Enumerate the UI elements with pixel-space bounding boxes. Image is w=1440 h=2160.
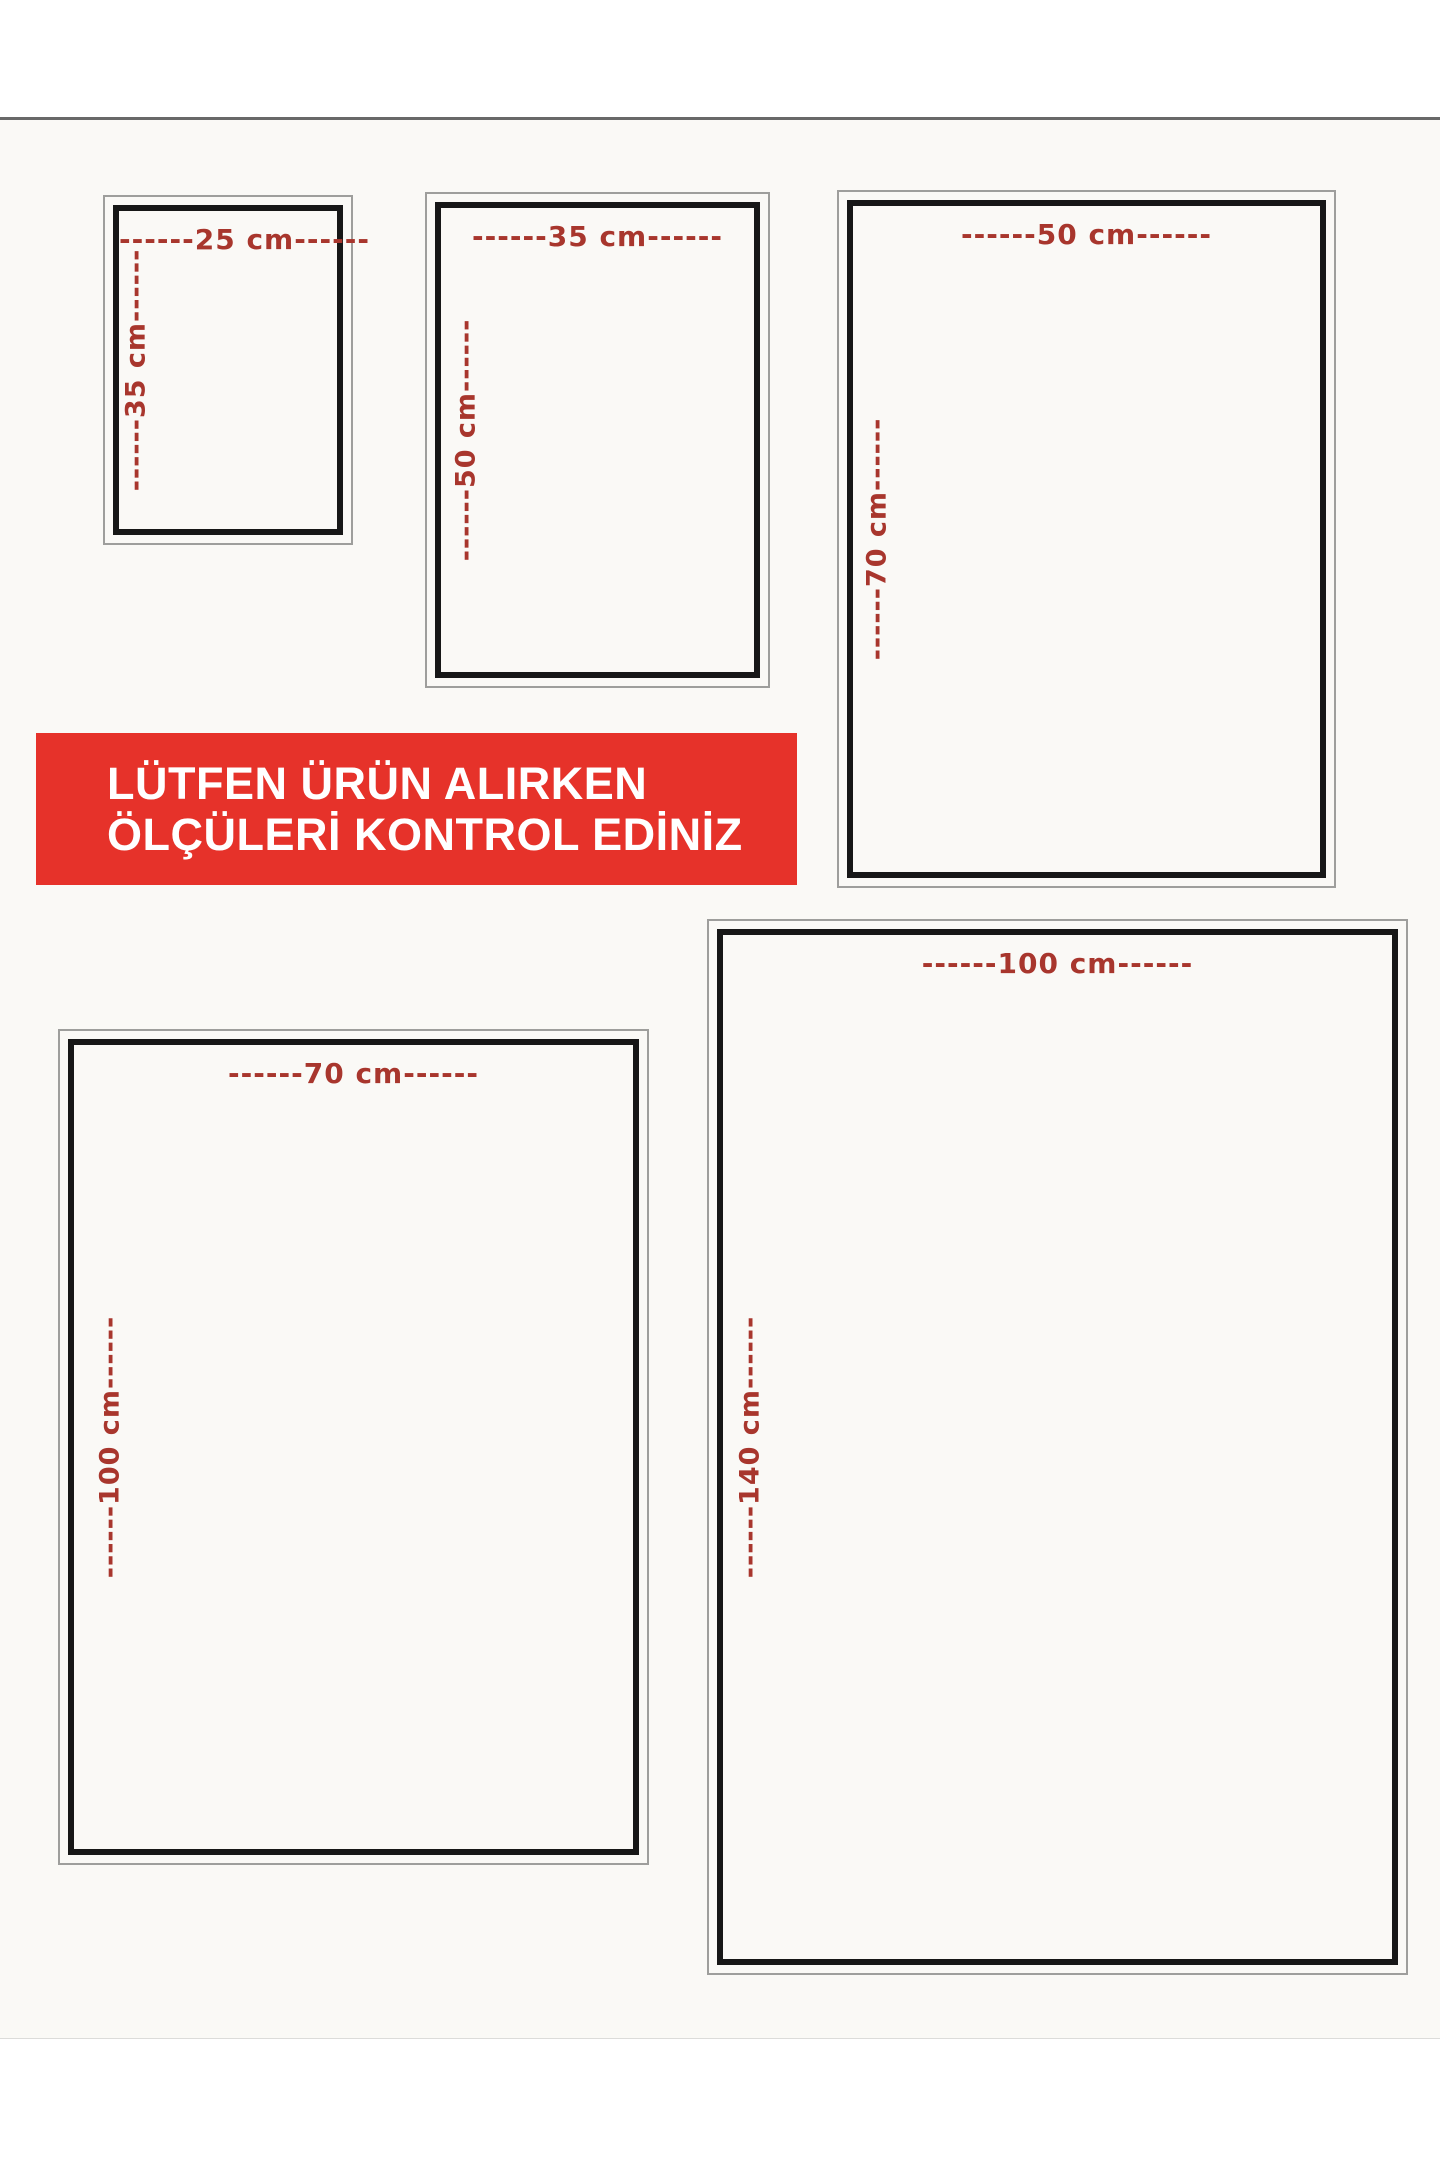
- warning-banner: LÜTFEN ÜRÜN ALIRKEN ÖLÇÜLERİ KONTROL EDİ…: [36, 733, 797, 885]
- size-frame-50x70: ------50 cm------ ------70 cm------: [837, 190, 1336, 888]
- width-dimension-label-35cm: ------35 cm------: [441, 220, 754, 253]
- width-dimension-label-70cm: ------70 cm------: [74, 1057, 633, 1090]
- height-dimension-label-35cm: ------35 cm------: [121, 249, 152, 492]
- height-dimension-label-140cm: ------140 cm------: [735, 1316, 766, 1578]
- size-frame-100x140-inner-border: ------100 cm------ ------140 cm------: [717, 929, 1398, 1965]
- size-frame-35x50-inner-border: ------35 cm------ ------50 cm------: [435, 202, 760, 678]
- warning-banner-line-1: LÜTFEN ÜRÜN ALIRKEN: [107, 758, 797, 809]
- size-frame-35x50: ------35 cm------ ------50 cm------: [425, 192, 770, 688]
- height-dimension-label-100cm: ------100 cm------: [95, 1316, 126, 1578]
- size-frame-25x35: ------25 cm------ ------35 cm------: [103, 195, 353, 545]
- size-frame-100x140: ------100 cm------ ------140 cm------: [707, 919, 1408, 1975]
- size-frame-50x70-inner-border: ------50 cm------ ------70 cm------: [847, 200, 1326, 878]
- width-dimension-label-25cm: ------25 cm------: [119, 223, 337, 256]
- size-frame-70x100-inner-border: ------70 cm------ ------100 cm------: [68, 1039, 639, 1855]
- height-dimension-label-50cm: ------50 cm------: [451, 319, 482, 562]
- height-dimension-label-70cm: ------70 cm------: [862, 418, 893, 661]
- size-frame-25x35-inner-border: ------25 cm------ ------35 cm------: [113, 205, 343, 535]
- warning-banner-line-2: ÖLÇÜLERİ KONTROL EDİNİZ: [107, 809, 797, 860]
- width-dimension-label-100cm: ------100 cm------: [723, 947, 1392, 980]
- size-frame-70x100: ------70 cm------ ------100 cm------: [58, 1029, 649, 1865]
- width-dimension-label-50cm: ------50 cm------: [853, 218, 1320, 251]
- size-chart-page: ------25 cm------ ------35 cm------ ----…: [0, 0, 1440, 2160]
